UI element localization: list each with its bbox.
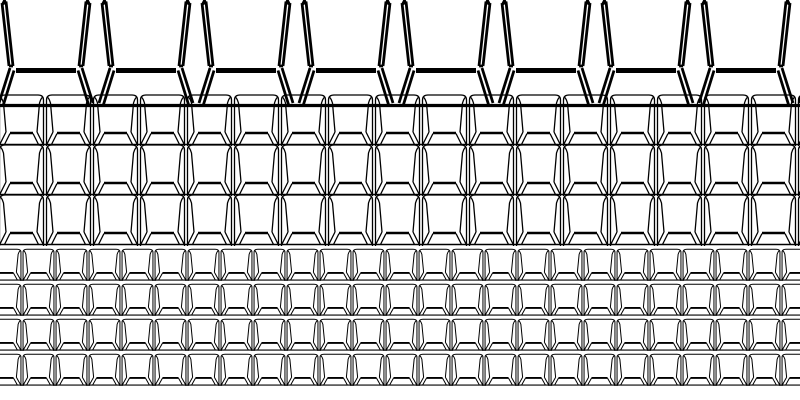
glyph-stroke xyxy=(584,354,615,386)
tray-glyph xyxy=(196,1,296,106)
glyph-stroke xyxy=(749,284,780,316)
tray-glyph xyxy=(609,145,656,196)
glyph-stroke xyxy=(419,284,450,316)
tray-glyph xyxy=(451,319,484,351)
tray-glyph xyxy=(656,195,703,246)
glyph-stroke xyxy=(320,354,351,386)
glyph-stroke xyxy=(89,284,120,316)
glyph-stroke xyxy=(518,284,549,316)
tray-glyph xyxy=(703,95,750,146)
tray-glyph xyxy=(139,195,186,246)
tray-glyph xyxy=(649,319,682,351)
glyph-stroke xyxy=(611,195,655,246)
glyph-stroke xyxy=(299,1,393,105)
glyph-stroke xyxy=(658,195,702,246)
tray-glyph xyxy=(385,249,418,281)
tray-glyph xyxy=(781,354,800,386)
tray-glyph xyxy=(649,284,682,316)
glyph-stroke xyxy=(782,319,800,351)
tray-glyph xyxy=(352,354,385,386)
tray-glyph xyxy=(220,319,253,351)
tray-glyph xyxy=(187,249,220,281)
tray-glyph xyxy=(121,249,154,281)
tray-glyph xyxy=(517,284,550,316)
glyph-stroke xyxy=(254,319,285,351)
glyph-stroke xyxy=(584,284,615,316)
glyph-stroke xyxy=(705,95,749,146)
tray-glyph xyxy=(280,195,327,246)
glyph-stroke xyxy=(617,354,648,386)
tray-glyph xyxy=(682,354,715,386)
glyph-stroke xyxy=(386,284,417,316)
tray-glyph xyxy=(550,319,583,351)
glyph-stroke xyxy=(470,145,514,196)
glyph-stroke xyxy=(89,354,120,386)
tray-glyph xyxy=(616,284,649,316)
tray-glyph xyxy=(327,195,374,246)
tray-glyph xyxy=(22,319,55,351)
glyph-stroke xyxy=(287,249,318,281)
glyph-stroke xyxy=(254,249,285,281)
tray-glyph xyxy=(484,319,517,351)
glyph-stroke xyxy=(650,284,681,316)
glyph-stroke xyxy=(56,284,87,316)
glyph-stroke xyxy=(683,249,714,281)
glyph-stroke xyxy=(650,249,681,281)
tray-glyph xyxy=(92,145,139,196)
tray-glyph xyxy=(186,195,233,246)
tray-glyph xyxy=(96,1,196,106)
glyph-stroke xyxy=(353,249,384,281)
glyph-stroke xyxy=(611,95,655,146)
glyph-stroke xyxy=(617,284,648,316)
glyph-stroke xyxy=(287,319,318,351)
glyph-stroke xyxy=(423,95,467,146)
tray-glyph xyxy=(656,95,703,146)
tray-glyph xyxy=(121,319,154,351)
tray-glyph xyxy=(421,195,468,246)
glyph-stroke xyxy=(683,354,714,386)
glyph-stroke xyxy=(155,249,186,281)
glyph-stroke xyxy=(658,95,702,146)
tray-glyph xyxy=(121,354,154,386)
glyph-stroke xyxy=(94,145,138,196)
glyph-stroke xyxy=(551,319,582,351)
tray-glyph xyxy=(233,95,280,146)
glyph-stroke xyxy=(499,1,593,105)
tray-glyph xyxy=(45,145,92,196)
glyph-stroke xyxy=(0,354,21,386)
glyph-stroke xyxy=(221,354,252,386)
tray-glyph xyxy=(649,249,682,281)
glyph-stroke xyxy=(419,249,450,281)
glyph-stroke xyxy=(155,354,186,386)
glyph-stroke xyxy=(47,95,91,146)
tray-glyph xyxy=(92,195,139,246)
tray-glyph xyxy=(154,284,187,316)
tray-glyph xyxy=(484,354,517,386)
tray-glyph xyxy=(154,249,187,281)
glyph-stroke xyxy=(199,1,293,105)
tray-glyph xyxy=(484,284,517,316)
tray-glyph xyxy=(385,319,418,351)
glyph-stroke xyxy=(452,249,483,281)
glyph-stroke xyxy=(122,284,153,316)
tray-glyph xyxy=(286,284,319,316)
tray-glyph xyxy=(715,249,748,281)
glyph-stroke xyxy=(518,354,549,386)
tray-glyph xyxy=(233,145,280,196)
glyph-stroke xyxy=(122,319,153,351)
glyph-stroke xyxy=(47,195,91,246)
pattern-canvas xyxy=(0,0,800,400)
glyph-stroke xyxy=(235,195,279,246)
tray-glyph xyxy=(715,354,748,386)
tray-glyph xyxy=(0,249,22,281)
tray-glyph xyxy=(233,195,280,246)
tray-glyph xyxy=(583,354,616,386)
glyph-stroke xyxy=(89,319,120,351)
glyph-stroke xyxy=(752,145,796,196)
tray-glyph xyxy=(418,249,451,281)
glyph-stroke xyxy=(23,284,54,316)
tray-glyph xyxy=(220,249,253,281)
glyph-stroke xyxy=(94,195,138,246)
tray-glyph xyxy=(22,284,55,316)
tray-glyph xyxy=(139,145,186,196)
tray-glyph xyxy=(596,1,696,106)
tray-glyph xyxy=(682,249,715,281)
tray-glyph xyxy=(418,354,451,386)
glyph-stroke xyxy=(399,1,493,105)
glyph-stroke xyxy=(376,195,420,246)
tray-glyph xyxy=(484,249,517,281)
tray-glyph xyxy=(0,145,45,196)
glyph-stroke xyxy=(56,319,87,351)
glyph-stroke xyxy=(235,145,279,196)
glyph-stroke xyxy=(23,249,54,281)
tray-glyph xyxy=(385,284,418,316)
glyph-stroke xyxy=(0,319,21,351)
glyph-stroke xyxy=(683,319,714,351)
glyph-stroke xyxy=(56,249,87,281)
glyph-stroke xyxy=(564,95,608,146)
tray-glyph xyxy=(352,249,385,281)
medium-round-top-trays xyxy=(0,95,800,246)
glyph-stroke xyxy=(611,145,655,196)
glyph-stroke xyxy=(599,1,693,105)
tray-glyph xyxy=(515,195,562,246)
glyph-stroke xyxy=(782,354,800,386)
glyph-stroke xyxy=(23,354,54,386)
glyph-stroke xyxy=(386,354,417,386)
glyph-stroke xyxy=(551,284,582,316)
tray-glyph xyxy=(616,249,649,281)
tray-glyph xyxy=(796,1,800,106)
tray-glyph xyxy=(186,145,233,196)
glyph-stroke xyxy=(221,249,252,281)
tray-glyph xyxy=(319,354,352,386)
glyph-stroke xyxy=(419,354,450,386)
tray-glyph xyxy=(748,354,781,386)
tray-glyph xyxy=(781,284,800,316)
glyph-stroke xyxy=(188,284,219,316)
tray-glyph xyxy=(515,95,562,146)
glyph-stroke xyxy=(188,145,232,196)
tray-glyph xyxy=(154,354,187,386)
glyph-stroke xyxy=(0,1,93,105)
glyph-stroke xyxy=(188,195,232,246)
tray-glyph xyxy=(22,249,55,281)
tray-glyph xyxy=(154,319,187,351)
tray-glyph xyxy=(88,354,121,386)
glyph-stroke xyxy=(564,145,608,196)
tray-glyph xyxy=(703,195,750,246)
glyph-stroke xyxy=(386,249,417,281)
tray-glyph xyxy=(396,1,496,106)
tray-glyph xyxy=(296,1,396,106)
glyph-stroke xyxy=(423,195,467,246)
glyph-stroke xyxy=(376,95,420,146)
tray-glyph xyxy=(750,195,797,246)
glyph-stroke xyxy=(584,249,615,281)
tray-glyph xyxy=(0,354,22,386)
tray-glyph xyxy=(187,284,220,316)
glyph-stroke xyxy=(329,145,373,196)
tray-glyph xyxy=(609,95,656,146)
tray-glyph xyxy=(0,284,22,316)
tray-glyph xyxy=(374,145,421,196)
tray-glyph xyxy=(656,145,703,196)
tray-glyph xyxy=(418,319,451,351)
tray-glyph xyxy=(0,95,45,146)
glyph-stroke xyxy=(99,1,193,105)
tray-glyph xyxy=(550,284,583,316)
tray-glyph xyxy=(748,284,781,316)
glyph-stroke xyxy=(551,354,582,386)
tray-glyph xyxy=(352,319,385,351)
tray-glyph xyxy=(515,145,562,196)
tray-glyph xyxy=(286,249,319,281)
glyph-stroke xyxy=(749,354,780,386)
tray-glyph xyxy=(583,284,616,316)
glyph-stroke xyxy=(716,284,747,316)
glyph-stroke xyxy=(320,249,351,281)
glyph-stroke xyxy=(0,249,21,281)
glyph-stroke xyxy=(386,319,417,351)
tray-glyph xyxy=(253,249,286,281)
tray-glyph xyxy=(468,145,515,196)
glyph-stroke xyxy=(353,284,384,316)
tiled-glyph-pattern xyxy=(0,0,800,400)
glyph-stroke xyxy=(485,249,516,281)
tray-glyph xyxy=(696,1,796,106)
glyph-stroke xyxy=(235,95,279,146)
tray-glyph xyxy=(682,319,715,351)
glyph-stroke xyxy=(320,319,351,351)
tray-glyph xyxy=(616,319,649,351)
glyph-stroke xyxy=(782,249,800,281)
tray-glyph xyxy=(22,354,55,386)
glyph-stroke xyxy=(188,319,219,351)
tray-glyph xyxy=(220,354,253,386)
tray-glyph xyxy=(55,249,88,281)
glyph-stroke xyxy=(353,354,384,386)
glyph-stroke xyxy=(650,319,681,351)
glyph-stroke xyxy=(749,249,780,281)
tray-glyph xyxy=(748,319,781,351)
glyph-stroke xyxy=(0,195,44,246)
glyph-stroke xyxy=(141,145,185,196)
glyph-stroke xyxy=(23,319,54,351)
tray-glyph xyxy=(562,195,609,246)
tray-glyph xyxy=(55,354,88,386)
tray-glyph xyxy=(187,354,220,386)
glyph-stroke xyxy=(0,284,21,316)
tray-glyph xyxy=(187,319,220,351)
glyph-stroke xyxy=(683,284,714,316)
large-open-trays xyxy=(0,1,800,106)
glyph-stroke xyxy=(518,319,549,351)
glyph-stroke xyxy=(221,319,252,351)
tray-glyph xyxy=(55,319,88,351)
glyph-stroke xyxy=(141,195,185,246)
glyph-stroke xyxy=(254,284,285,316)
glyph-stroke xyxy=(221,284,252,316)
tray-glyph xyxy=(517,354,550,386)
glyph-stroke xyxy=(517,95,561,146)
glyph-stroke xyxy=(122,249,153,281)
tray-glyph xyxy=(517,249,550,281)
glyph-stroke xyxy=(423,145,467,196)
glyph-stroke xyxy=(329,195,373,246)
tray-glyph xyxy=(374,195,421,246)
tray-glyph xyxy=(451,284,484,316)
glyph-stroke xyxy=(282,195,326,246)
tray-glyph xyxy=(45,95,92,146)
tray-glyph xyxy=(139,95,186,146)
tray-glyph xyxy=(352,284,385,316)
glyph-stroke xyxy=(282,145,326,196)
glyph-stroke xyxy=(782,284,800,316)
tray-glyph xyxy=(421,145,468,196)
glyph-stroke xyxy=(141,95,185,146)
tray-glyph xyxy=(55,284,88,316)
tray-glyph xyxy=(253,284,286,316)
tray-glyph xyxy=(451,354,484,386)
glyph-stroke xyxy=(650,354,681,386)
glyph-stroke xyxy=(47,145,91,196)
tray-glyph xyxy=(616,354,649,386)
glyph-stroke xyxy=(452,354,483,386)
glyph-stroke xyxy=(699,1,793,105)
glyph-stroke xyxy=(452,284,483,316)
glyph-stroke xyxy=(419,319,450,351)
tray-glyph xyxy=(319,284,352,316)
glyph-stroke xyxy=(89,249,120,281)
glyph-stroke xyxy=(376,145,420,196)
tray-glyph xyxy=(88,284,121,316)
glyph-stroke xyxy=(749,319,780,351)
glyph-stroke xyxy=(564,195,608,246)
tray-glyph xyxy=(583,319,616,351)
tray-glyph xyxy=(45,195,92,246)
glyph-stroke xyxy=(155,284,186,316)
glyph-stroke xyxy=(617,319,648,351)
glyph-stroke xyxy=(485,354,516,386)
tray-glyph xyxy=(253,354,286,386)
tray-glyph xyxy=(750,145,797,196)
tray-glyph xyxy=(750,95,797,146)
tray-glyph xyxy=(609,195,656,246)
glyph-stroke xyxy=(470,195,514,246)
tray-glyph xyxy=(385,354,418,386)
tray-glyph xyxy=(421,95,468,146)
glyph-stroke xyxy=(517,195,561,246)
tray-glyph xyxy=(374,95,421,146)
glyph-stroke xyxy=(705,145,749,196)
glyph-stroke xyxy=(287,284,318,316)
glyph-stroke xyxy=(188,354,219,386)
glyph-stroke xyxy=(287,354,318,386)
tray-glyph xyxy=(0,319,22,351)
tray-glyph xyxy=(327,145,374,196)
glyph-stroke xyxy=(320,284,351,316)
tray-glyph xyxy=(748,249,781,281)
tray-glyph xyxy=(121,284,154,316)
tray-glyph xyxy=(0,195,45,246)
tray-glyph xyxy=(418,284,451,316)
tray-glyph xyxy=(649,354,682,386)
glyph-stroke xyxy=(0,95,44,146)
tray-glyph xyxy=(253,319,286,351)
glyph-stroke xyxy=(0,145,44,196)
glyph-stroke xyxy=(716,354,747,386)
tray-glyph xyxy=(550,354,583,386)
tray-glyph xyxy=(703,145,750,196)
glyph-stroke xyxy=(353,319,384,351)
tray-glyph xyxy=(0,1,96,106)
glyph-stroke xyxy=(485,284,516,316)
glyph-stroke xyxy=(716,319,747,351)
tray-glyph xyxy=(583,249,616,281)
tray-glyph xyxy=(286,354,319,386)
glyph-stroke xyxy=(188,249,219,281)
tray-glyph xyxy=(517,319,550,351)
glyph-stroke xyxy=(716,249,747,281)
tray-glyph xyxy=(562,145,609,196)
tray-glyph xyxy=(319,319,352,351)
tray-glyph xyxy=(220,284,253,316)
tray-glyph xyxy=(562,95,609,146)
glyph-stroke xyxy=(617,249,648,281)
tray-glyph xyxy=(781,319,800,351)
tray-glyph xyxy=(88,319,121,351)
glyph-stroke xyxy=(551,249,582,281)
glyph-stroke xyxy=(122,354,153,386)
tray-glyph xyxy=(781,249,800,281)
tray-glyph xyxy=(327,95,374,146)
tray-glyph xyxy=(319,249,352,281)
glyph-stroke xyxy=(452,319,483,351)
glyph-stroke xyxy=(155,319,186,351)
glyph-stroke xyxy=(752,195,796,246)
glyph-stroke xyxy=(329,95,373,146)
tray-glyph xyxy=(451,249,484,281)
glyph-stroke xyxy=(517,145,561,196)
glyph-stroke xyxy=(56,354,87,386)
glyph-stroke xyxy=(254,354,285,386)
